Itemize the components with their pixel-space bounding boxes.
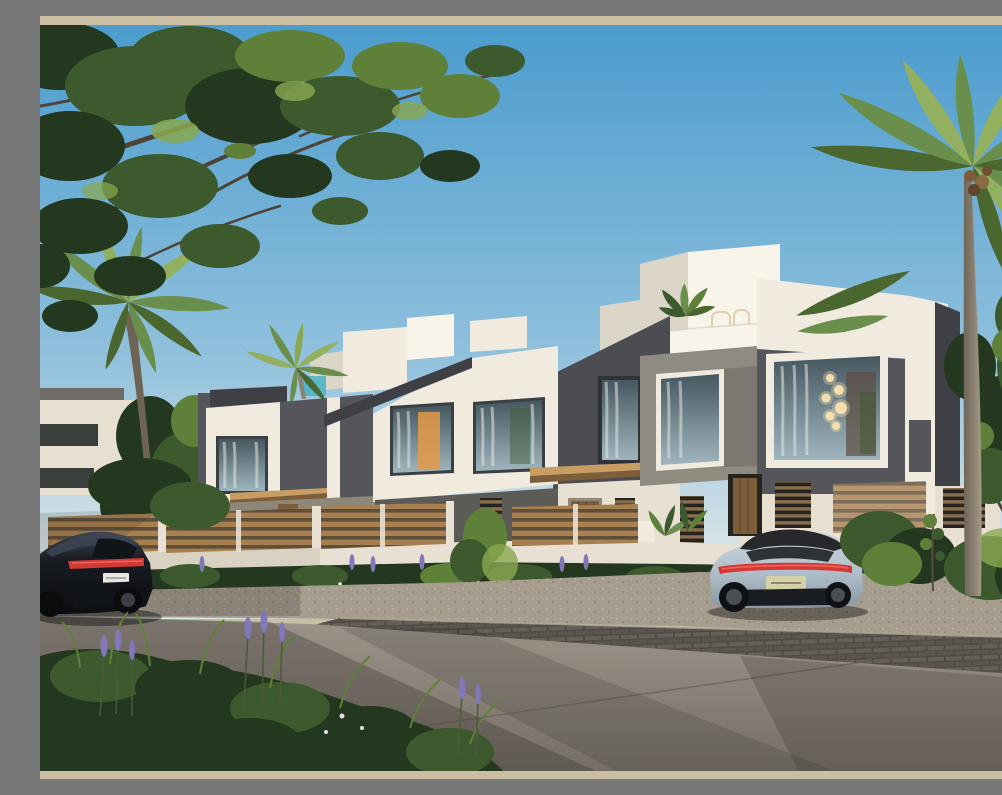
- louver-shutter: [775, 482, 811, 528]
- window-right-small: [656, 369, 724, 471]
- window-middle-2: [473, 397, 545, 474]
- architectural-render-image: [40, 16, 1002, 779]
- border-top: [40, 16, 1002, 25]
- entry-door-right-unit: [728, 474, 762, 536]
- render-canvas: [40, 16, 1002, 779]
- window-left-unit: [216, 436, 268, 494]
- window-middle-1: [390, 402, 454, 476]
- window-right-large: [766, 348, 888, 468]
- warm-interior-light: [418, 412, 440, 470]
- border-bottom: [40, 771, 1002, 779]
